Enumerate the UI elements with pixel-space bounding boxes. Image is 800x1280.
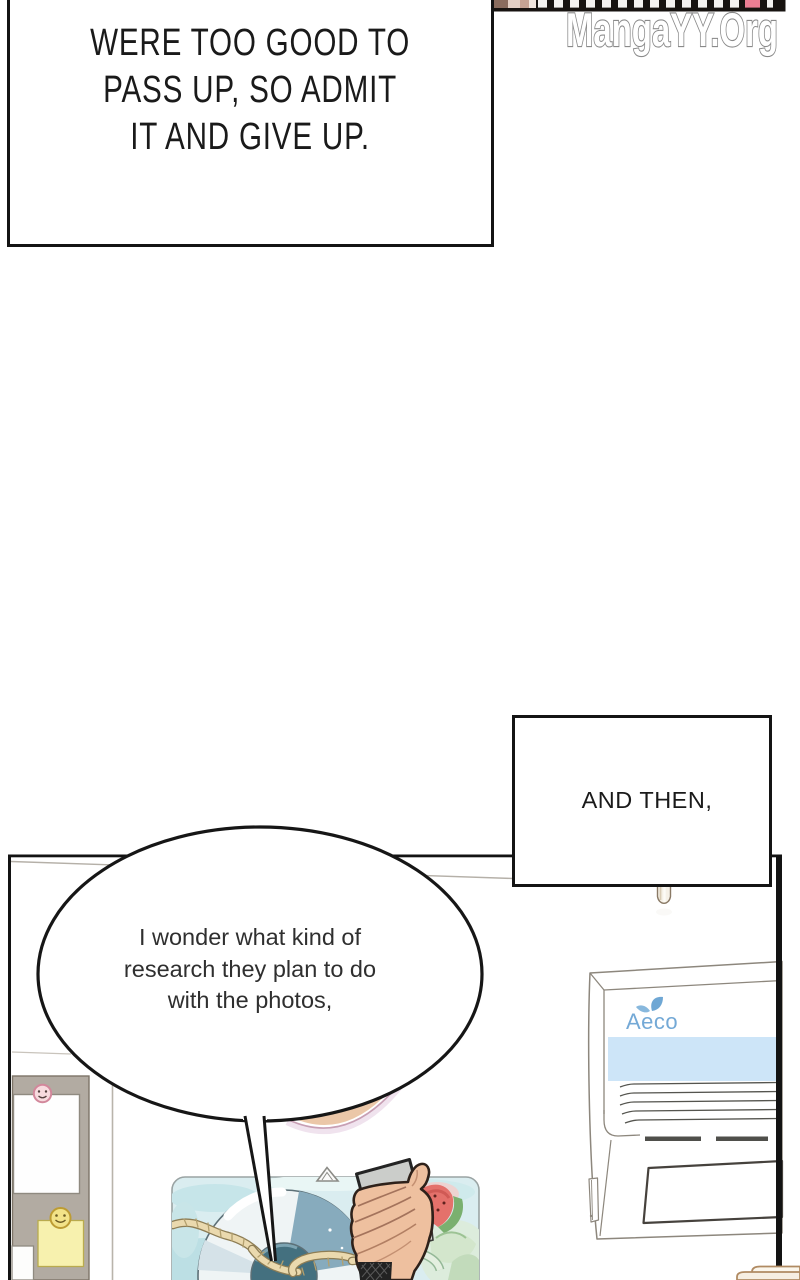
- svg-text:MangaYY.Org: MangaYY.Org: [566, 3, 778, 56]
- svg-text:Aeco: Aeco: [626, 1009, 678, 1034]
